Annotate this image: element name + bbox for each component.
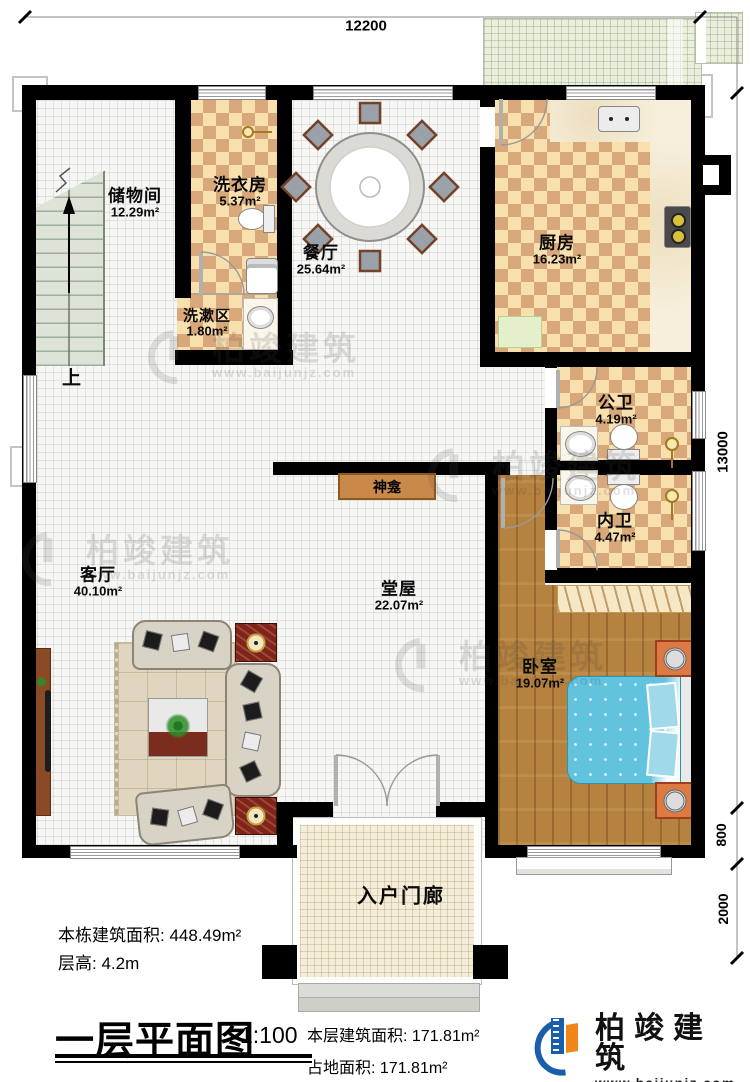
wall-kitchen-bottom xyxy=(480,352,705,367)
sofa-bottom xyxy=(134,783,235,847)
burner xyxy=(671,213,686,228)
window-top-laundry xyxy=(198,86,266,100)
sofa-pillow xyxy=(241,731,261,751)
wall-kitchen-left-stub xyxy=(480,85,495,107)
room-area: 19.07m² xyxy=(516,676,564,690)
laundry-toilet-bowl xyxy=(238,208,266,230)
floor-height-label: 层高: xyxy=(58,954,97,973)
window-right-bath2 xyxy=(692,471,706,551)
room-name: 堂屋 xyxy=(375,580,423,598)
room-name: 储物间 xyxy=(108,187,162,205)
shrine-shelf: 神龛 xyxy=(338,473,436,500)
wardrobe xyxy=(557,585,693,613)
wall-laundry-dining xyxy=(277,85,292,365)
sofa-right xyxy=(225,663,281,797)
table-plant xyxy=(163,711,193,741)
stairs-up-label: 上 xyxy=(62,369,82,389)
bay-window-sill xyxy=(516,857,672,875)
sofa-pillow xyxy=(202,799,224,821)
sink-tap xyxy=(609,117,613,121)
logo-building-orange xyxy=(566,1023,578,1053)
stairs-up-text: 上 xyxy=(62,369,82,389)
room-label-kitchen: 厨房 16.23m² xyxy=(533,234,581,265)
dim-right-bay: 800 xyxy=(713,823,729,846)
sofa-pillow xyxy=(171,633,190,652)
company-logo-icon xyxy=(535,1014,585,1068)
company-name: 柏竣建筑 xyxy=(595,1014,750,1074)
shrine-label: 神龛 xyxy=(373,477,401,497)
room-name: 卧室 xyxy=(516,658,564,676)
footprint-value: 171.81m² xyxy=(380,1060,448,1077)
nightstand-lamp xyxy=(664,647,687,670)
room-label-hall: 堂屋 22.07m² xyxy=(375,580,423,611)
side-table-bottom xyxy=(235,797,277,835)
bed-pillow-2 xyxy=(646,730,680,778)
sofa-pillow xyxy=(242,701,262,721)
floor-area-label: 本层建筑面积: xyxy=(307,1028,407,1045)
room-area: 12.29m² xyxy=(108,205,162,219)
window-top-dining xyxy=(313,86,453,100)
room-label-living: 客厅 40.10m² xyxy=(74,566,122,597)
corridor-floor xyxy=(498,475,545,585)
room-name: 客厅 xyxy=(74,566,122,584)
room-area: 40.10m² xyxy=(74,584,122,598)
sofa-pillow xyxy=(240,670,263,693)
room-name: 洗漱区 xyxy=(183,308,231,324)
total-area-line: 本栋建筑面积: 448.49m² xyxy=(58,921,241,946)
corridor-door-opening xyxy=(510,462,545,475)
bed-pillow-1 xyxy=(646,682,680,730)
kitchen-sink xyxy=(598,106,640,132)
sofa-pillow xyxy=(150,808,169,827)
bath1-toilet-bowl xyxy=(610,424,638,450)
room-name: 洗衣房 xyxy=(213,176,267,194)
room-name: 餐厅 xyxy=(297,244,345,262)
stove xyxy=(664,206,691,248)
total-area-label: 本栋建筑面积: xyxy=(58,926,165,945)
room-name: 公卫 xyxy=(595,394,636,412)
cabinet-plant xyxy=(36,676,47,688)
nightstand-lamp xyxy=(664,789,687,812)
room-area: 4.19m² xyxy=(595,412,636,426)
room-name: 厨房 xyxy=(533,234,581,252)
sofa-top xyxy=(132,620,232,670)
room-label-public-bath: 公卫 4.19m² xyxy=(595,394,636,425)
wall-kitchen-left xyxy=(480,147,495,367)
floor-area-value: 171.81m² xyxy=(412,1028,480,1045)
window-left-living xyxy=(23,375,37,483)
floor-plan-canvas: 神龛 xyxy=(0,0,750,1082)
sofa-pillow xyxy=(177,806,198,827)
room-name: 内卫 xyxy=(594,512,635,530)
sofa-pillow xyxy=(142,630,163,651)
floor-area-line: 本层建筑面积: 171.81m² xyxy=(307,1022,480,1046)
lamp-dot xyxy=(254,641,258,645)
wall-hall-front-right xyxy=(436,802,488,817)
lamp-dot xyxy=(254,814,258,818)
wall-bath-bottom xyxy=(545,568,705,583)
room-label-porch: 入户门廊 xyxy=(357,887,445,908)
nightstand-top xyxy=(655,640,695,677)
washing-machine xyxy=(246,258,278,294)
side-table-top xyxy=(235,623,277,662)
room-area: 4.47m² xyxy=(594,530,635,544)
porch-step-2 xyxy=(298,997,480,1012)
kitchen-mat xyxy=(498,316,542,348)
footprint-label: 占地面积: xyxy=(307,1060,375,1077)
room-area: 1.80m² xyxy=(183,324,231,338)
coffee-table xyxy=(148,698,208,757)
room-area: 16.23m² xyxy=(533,252,581,266)
company-logo: 柏竣建筑 www.baijunjz.com xyxy=(535,1014,750,1082)
window-bottom-living xyxy=(70,846,240,859)
total-area-value: 448.49m² xyxy=(169,926,241,945)
wall-washarea-bottom xyxy=(175,350,293,365)
room-label-bedroom: 卧室 19.07m² xyxy=(516,658,564,689)
dim-right-total: 13000 xyxy=(715,431,732,473)
room-label-storage: 储物间 12.29m² xyxy=(108,187,162,218)
terrace-corner-box xyxy=(695,12,743,64)
burner xyxy=(671,229,686,244)
sofa-pillow xyxy=(198,631,220,653)
room-area: 22.07m² xyxy=(375,598,423,612)
wall-storage-laundry xyxy=(175,85,191,298)
terrace-edge xyxy=(668,19,683,86)
window-top-kitchen xyxy=(566,86,656,100)
room-label-inner-bath: 内卫 4.47m² xyxy=(594,512,635,543)
tv-screen xyxy=(45,690,51,772)
wall-corner-left xyxy=(277,802,293,858)
kitchen-door-opening xyxy=(480,107,495,147)
nightstand-bottom xyxy=(655,782,695,819)
room-area: 25.64m² xyxy=(297,262,345,276)
bath1-basin xyxy=(565,431,596,457)
room-name: 入户门廊 xyxy=(357,887,445,908)
footprint-line: 占地面积: 171.81m² xyxy=(307,1054,448,1078)
flue-notch xyxy=(703,165,719,185)
dim-right-porch: 2000 xyxy=(715,893,731,924)
logo-building-blue xyxy=(551,1018,564,1054)
porch-column-right xyxy=(473,945,508,979)
bath1-toilet-tank xyxy=(607,449,640,460)
wall-corridor-left xyxy=(485,475,498,858)
bath2-door-opening xyxy=(545,530,557,570)
wash-area-basin xyxy=(247,306,274,329)
scale-label: 1:100 xyxy=(240,1022,298,1049)
floor-height-value: 4.2m xyxy=(101,954,139,973)
title-underline-thin xyxy=(55,1061,312,1063)
laundry-toilet-tank xyxy=(263,205,275,233)
window-right-bath1 xyxy=(692,391,706,439)
company-website: www.baijunjz.com xyxy=(595,1077,750,1082)
sink-tap xyxy=(625,117,629,121)
bath2-toilet-bowl xyxy=(610,484,638,510)
porch-column-left xyxy=(262,945,297,979)
bath1-door-opening xyxy=(545,368,557,408)
title-underline-thick xyxy=(55,1054,312,1058)
room-label-dining: 餐厅 25.64m² xyxy=(297,244,345,275)
bath2-basin xyxy=(565,475,596,501)
room-label-washarea: 洗漱区 1.80m² xyxy=(183,308,231,337)
dim-top: 12200 xyxy=(345,18,387,35)
room-area: 5.37m² xyxy=(213,194,267,208)
sofa-pillow xyxy=(239,760,262,783)
floor-height-line: 层高: 4.2m xyxy=(58,949,139,974)
room-label-laundry: 洗衣房 5.37m² xyxy=(213,176,267,207)
